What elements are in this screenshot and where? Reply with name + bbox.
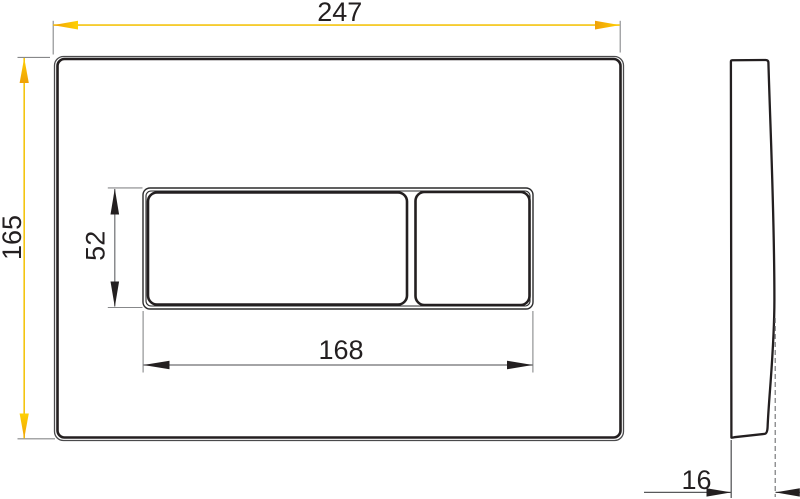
- dim-depth-label: 16: [681, 465, 711, 495]
- dimension-overall-height: 165: [0, 57, 55, 438]
- button-recess-outer: [143, 188, 533, 309]
- front-view: [55, 57, 624, 441]
- dim-height-label: 165: [0, 215, 27, 260]
- arrow-left-icon: [53, 21, 78, 30]
- arrow-right-icon: [595, 21, 620, 30]
- dimension-button-height: 52: [81, 188, 143, 308]
- dim-button-height-label: 52: [81, 231, 111, 261]
- side-view: [731, 60, 775, 497]
- arrow-up-icon: [20, 58, 29, 83]
- dimension-depth: 16: [644, 440, 800, 498]
- dimension-overall-width: 247: [53, 0, 620, 55]
- arrow-right-icon: [507, 361, 533, 370]
- plate-face-outline: [58, 59, 621, 438]
- flush-button-large: [148, 193, 407, 305]
- button-recess-inner: [146, 191, 530, 306]
- flush-plate-drawing: 247 165 52 168 16: [0, 0, 800, 499]
- arrow-down-icon: [111, 282, 120, 308]
- technical-drawing-page: 247 165 52 168 16: [0, 0, 800, 499]
- dim-width-label: 247: [317, 0, 362, 27]
- plate-edge-outline: [55, 57, 624, 441]
- dimension-button-width: 168: [143, 311, 533, 373]
- side-profile-outline: [731, 60, 775, 438]
- dim-button-width-label: 168: [318, 335, 363, 365]
- arrow-left-icon: [775, 488, 799, 496]
- arrow-up-icon: [111, 189, 120, 215]
- flush-button-small: [416, 192, 530, 305]
- arrow-down-icon: [20, 414, 29, 439]
- arrow-left-icon: [143, 361, 169, 370]
